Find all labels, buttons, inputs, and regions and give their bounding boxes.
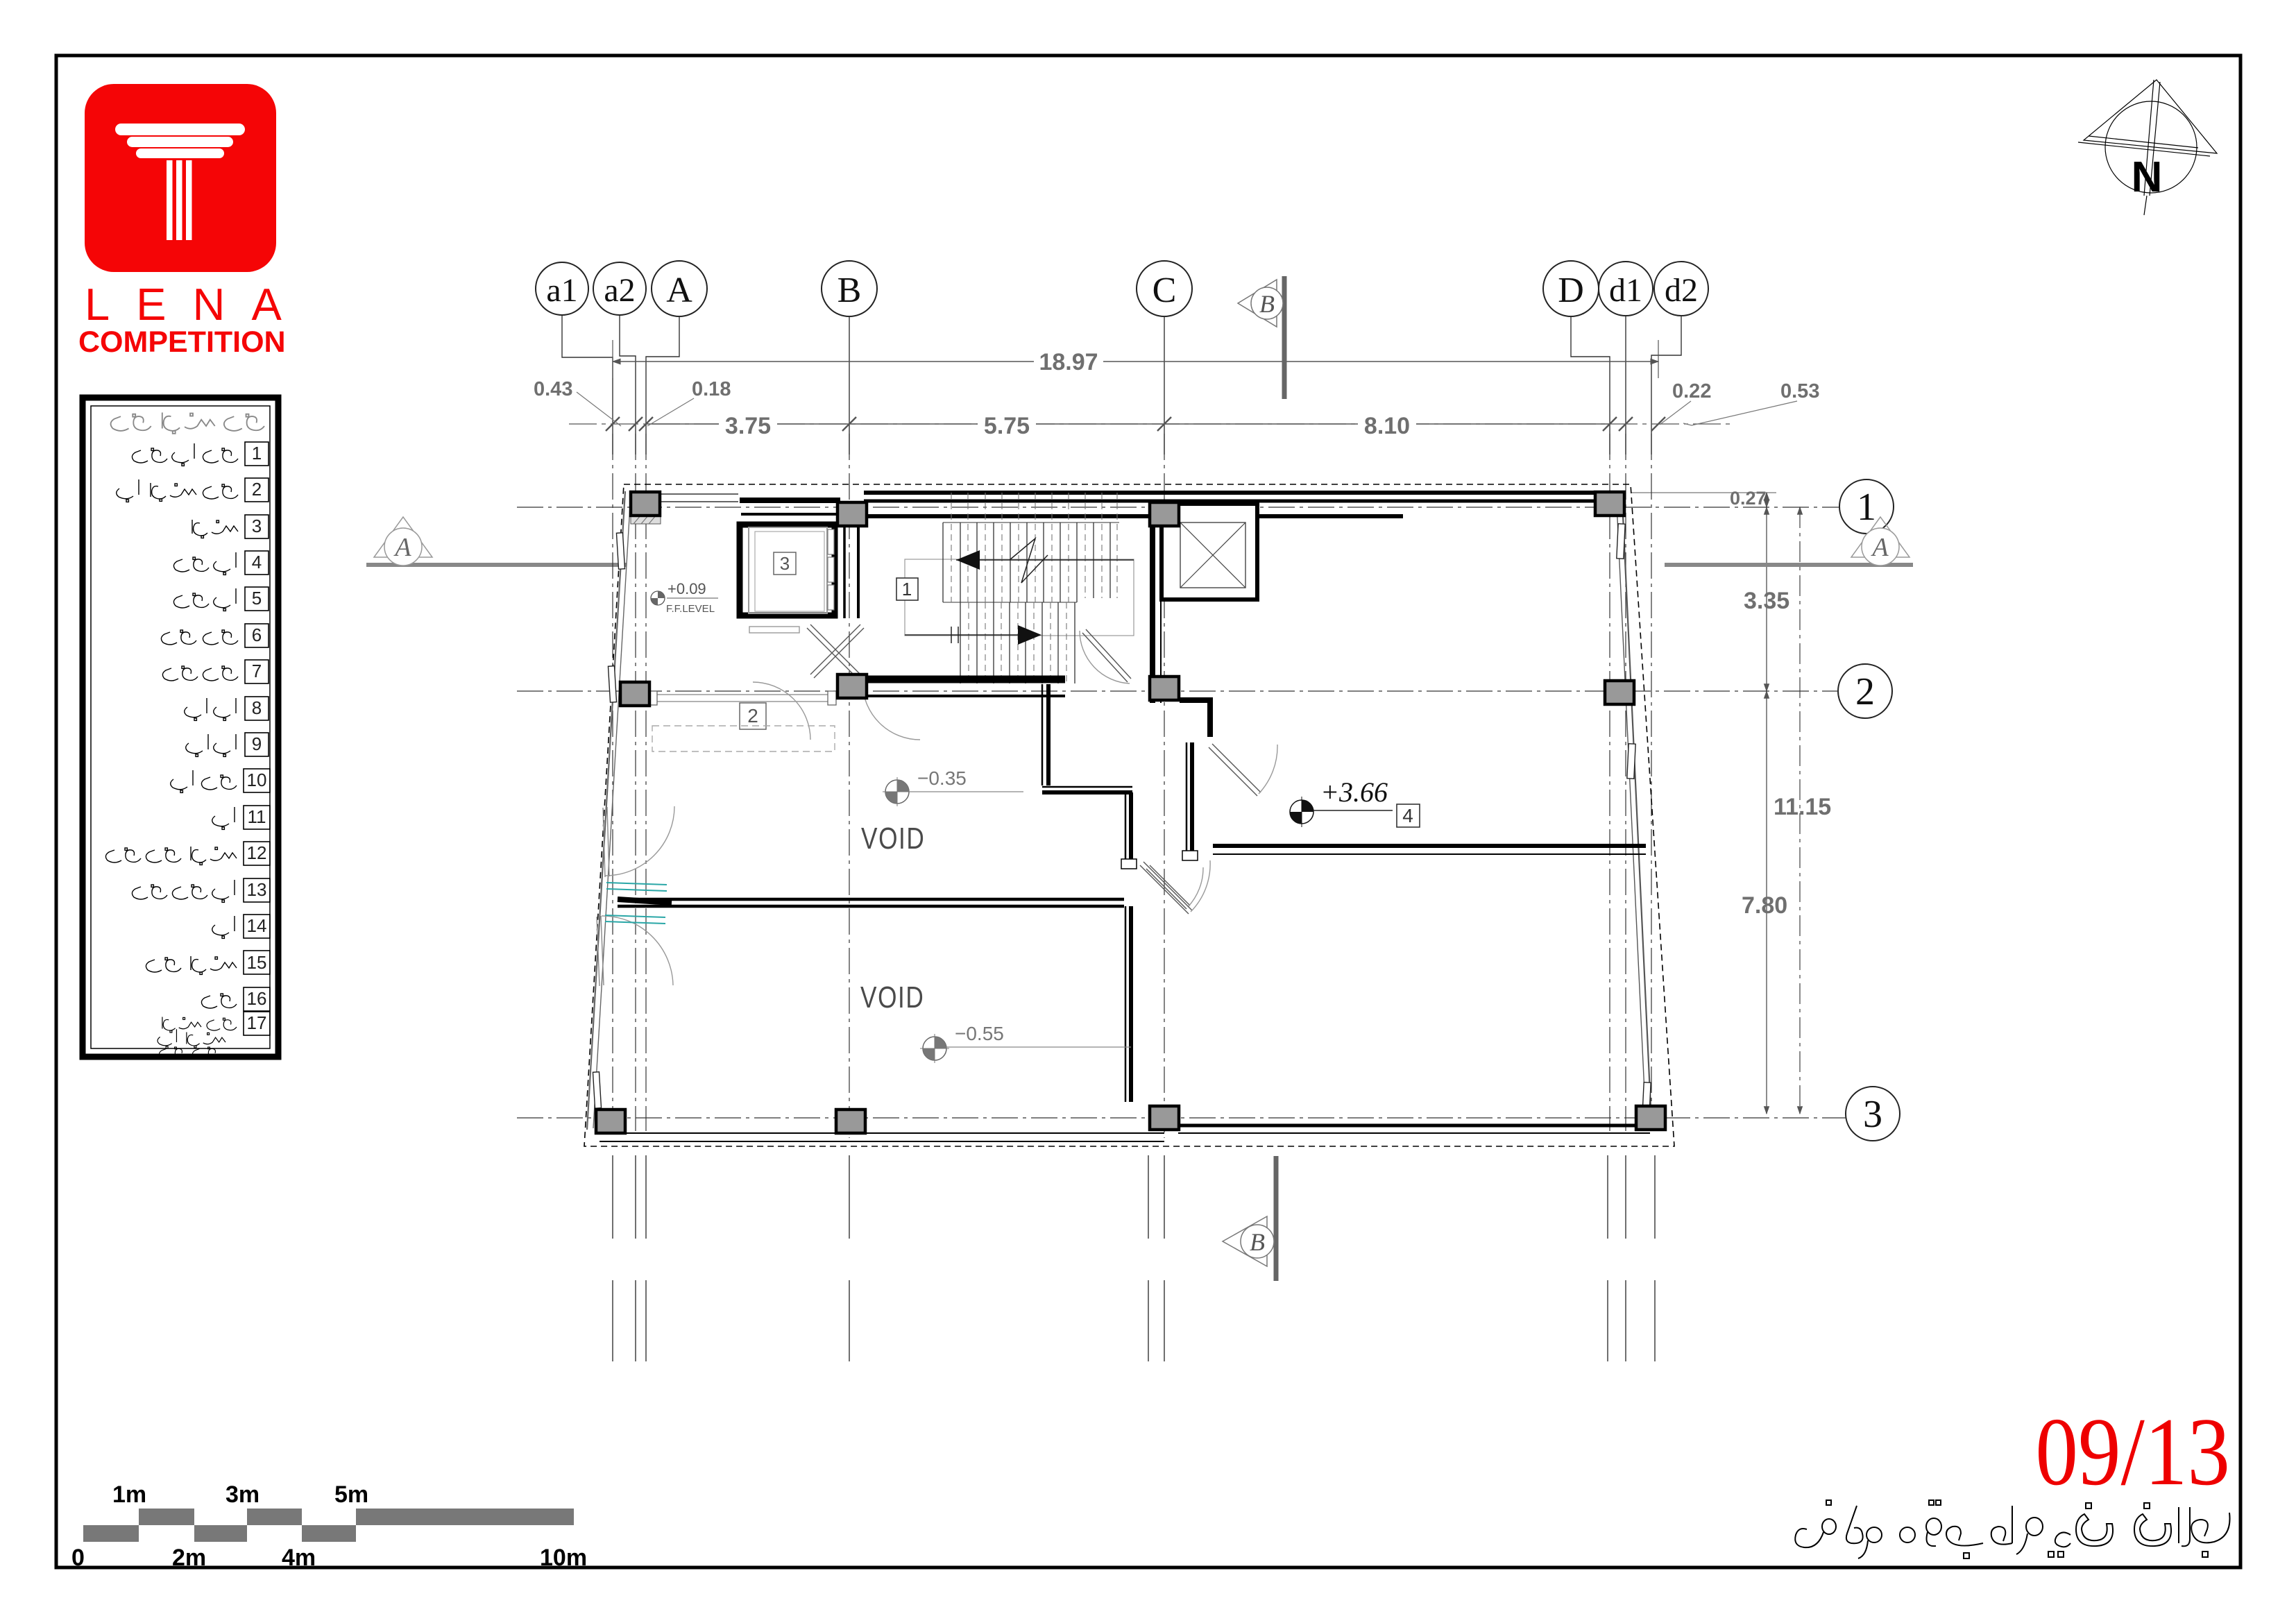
svg-text:18.97: 18.97: [1039, 349, 1098, 375]
svg-text:0.27: 0.27: [1730, 488, 1767, 509]
svg-text:−0.35: −0.35: [917, 767, 967, 789]
svg-text:VOID: VOID: [860, 980, 924, 1014]
svg-text:−0.55: −0.55: [955, 1023, 1004, 1044]
svg-text:3: 3: [780, 553, 790, 574]
svg-text:a1: a1: [546, 272, 577, 309]
svg-text:1: 1: [902, 579, 912, 600]
svg-text:11: 11: [248, 806, 266, 827]
svg-text:10m: 10m: [540, 1545, 587, 1571]
svg-text:11.15: 11.15: [1774, 794, 1831, 820]
svg-text:A: A: [393, 533, 411, 562]
svg-text:7: 7: [252, 661, 262, 681]
svg-text:14: 14: [247, 915, 267, 936]
svg-text:VOID: VOID: [861, 822, 925, 856]
svg-text:0.18: 0.18: [692, 378, 731, 400]
svg-text:1: 1: [1857, 486, 1876, 529]
svg-text:3: 3: [252, 516, 262, 536]
svg-text:3m: 3m: [226, 1481, 260, 1508]
svg-text:4: 4: [252, 552, 262, 572]
svg-text:8: 8: [252, 697, 262, 718]
svg-text:N: N: [2132, 153, 2163, 201]
svg-text:D: D: [1558, 271, 1584, 310]
svg-text:2: 2: [747, 705, 758, 726]
svg-text:0.43: 0.43: [534, 378, 572, 400]
svg-text:2m: 2m: [172, 1545, 206, 1571]
svg-text:13: 13: [247, 879, 267, 900]
svg-text:LENA: LENA: [85, 279, 308, 330]
svg-text:17: 17: [247, 1012, 267, 1033]
svg-text:16: 16: [247, 988, 267, 1009]
svg-text:10: 10: [247, 770, 267, 790]
svg-text:6: 6: [252, 624, 262, 645]
svg-text:COMPETITION: COMPETITION: [78, 325, 286, 359]
svg-text:B: B: [1259, 290, 1275, 318]
svg-text:B: B: [1250, 1228, 1265, 1256]
svg-text:0.22: 0.22: [1672, 380, 1711, 402]
svg-text:d2: d2: [1665, 272, 1698, 309]
svg-text:0: 0: [71, 1545, 85, 1571]
svg-text:4: 4: [1402, 805, 1413, 826]
svg-text:3: 3: [1863, 1093, 1882, 1136]
svg-text:a2: a2: [604, 272, 635, 309]
svg-text:5m: 5m: [334, 1481, 368, 1508]
svg-text:d1: d1: [1609, 272, 1642, 309]
svg-text:1m: 1m: [112, 1481, 146, 1508]
svg-text:2: 2: [1855, 670, 1875, 713]
svg-text:4m: 4m: [282, 1545, 316, 1571]
svg-text:A: A: [1870, 533, 1889, 562]
svg-text:3.35: 3.35: [1744, 588, 1789, 614]
svg-text:A: A: [666, 271, 692, 310]
svg-text:9: 9: [252, 733, 262, 754]
svg-text:0.53: 0.53: [1780, 380, 1819, 402]
svg-text:+0.09: +0.09: [667, 580, 706, 597]
svg-text:12: 12: [247, 842, 267, 863]
svg-text:8.10: 8.10: [1364, 413, 1410, 439]
svg-text:5.75: 5.75: [984, 413, 1030, 439]
svg-text:3.75: 3.75: [725, 413, 771, 439]
svg-text:+3.66: +3.66: [1320, 776, 1388, 808]
svg-text:C: C: [1153, 271, 1177, 310]
svg-text:B: B: [837, 271, 862, 310]
svg-text:15: 15: [247, 952, 267, 973]
svg-text:1: 1: [252, 443, 262, 464]
svg-text:2: 2: [252, 479, 262, 500]
svg-text:7.80: 7.80: [1742, 892, 1787, 919]
svg-text:09/13: 09/13: [2035, 1397, 2230, 1506]
svg-text:5: 5: [252, 588, 262, 609]
svg-text:F.F.LEVEL: F.F.LEVEL: [666, 603, 715, 615]
